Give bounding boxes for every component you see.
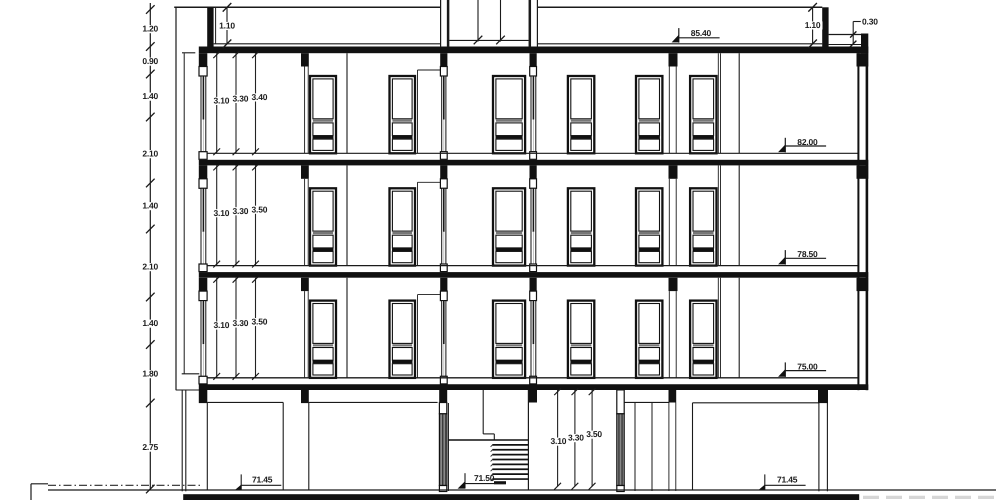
svg-text:71.45: 71.45 xyxy=(777,475,798,485)
svg-text:71.50: 71.50 xyxy=(474,473,495,483)
svg-text:3.40: 3.40 xyxy=(252,92,268,102)
svg-text:1.10: 1.10 xyxy=(219,21,235,31)
svg-text:3.50: 3.50 xyxy=(252,204,268,214)
svg-text:2.10: 2.10 xyxy=(142,149,158,159)
svg-text:1.20: 1.20 xyxy=(142,24,158,34)
svg-text:3.30: 3.30 xyxy=(233,94,249,104)
svg-text:3.50: 3.50 xyxy=(586,429,602,439)
svg-text:2.10: 2.10 xyxy=(142,262,158,272)
svg-text:1.80: 1.80 xyxy=(142,369,158,379)
svg-text:1.40: 1.40 xyxy=(142,201,158,211)
svg-text:3.30: 3.30 xyxy=(568,433,584,443)
svg-text:1.40: 1.40 xyxy=(142,91,158,101)
svg-text:85.40: 85.40 xyxy=(691,28,712,38)
svg-text:3.30: 3.30 xyxy=(233,206,249,216)
svg-text:3.10: 3.10 xyxy=(214,96,230,106)
svg-text:78.50: 78.50 xyxy=(797,249,818,259)
svg-text:2.75: 2.75 xyxy=(142,442,158,452)
svg-text:1.10: 1.10 xyxy=(805,20,821,30)
svg-text:0.30: 0.30 xyxy=(862,16,878,26)
svg-text:0.90: 0.90 xyxy=(142,56,158,66)
svg-text:75.00: 75.00 xyxy=(797,361,818,371)
svg-text:3.30: 3.30 xyxy=(233,318,249,328)
svg-text:3.10: 3.10 xyxy=(214,320,230,330)
svg-text:1.40: 1.40 xyxy=(142,318,158,328)
svg-text:82.00: 82.00 xyxy=(797,137,818,147)
svg-text:3.10: 3.10 xyxy=(214,208,230,218)
svg-text:71.45: 71.45 xyxy=(252,475,273,485)
svg-text:3.50: 3.50 xyxy=(252,317,268,327)
svg-text:3.10: 3.10 xyxy=(551,436,567,446)
